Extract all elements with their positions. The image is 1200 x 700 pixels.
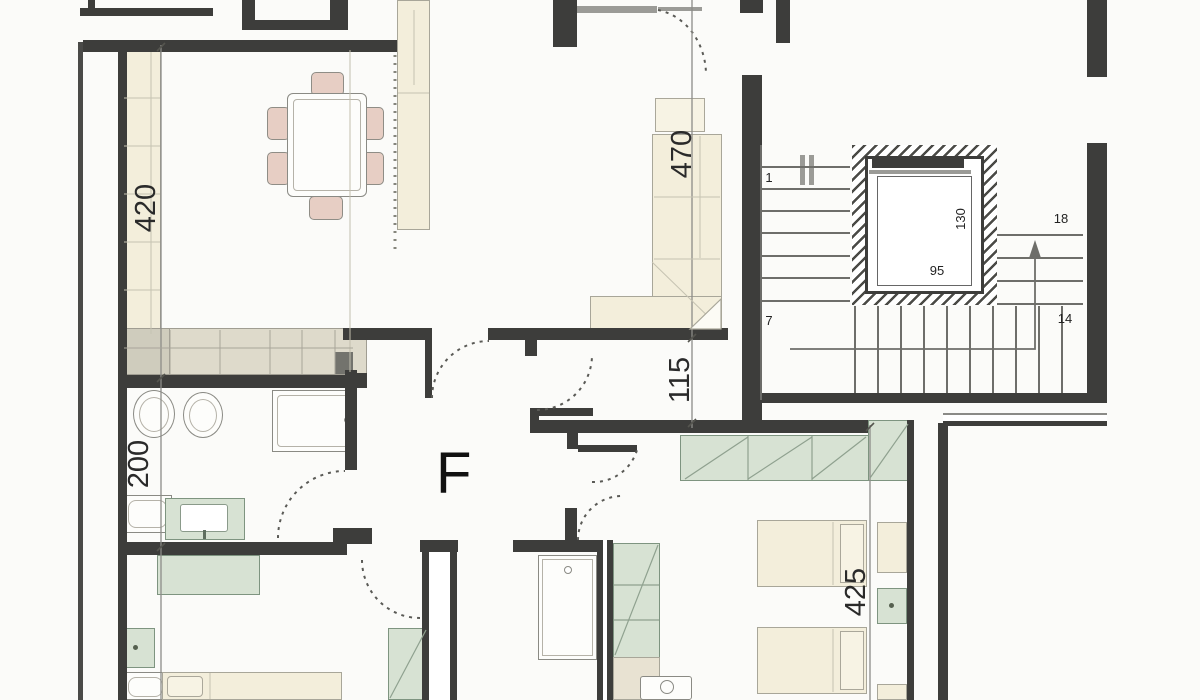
dim-corridor-width: 115 (667, 340, 693, 420)
stair-number-14: 14 (1054, 311, 1076, 325)
door-swing-arc (578, 496, 622, 540)
door-swing-arc (432, 341, 489, 398)
elevator-depth-label: 130 (953, 201, 967, 237)
stair-direction-arrow (1029, 240, 1041, 258)
dim-bathroom-depth: 200 (126, 424, 152, 504)
door-swing-arc (658, 10, 706, 74)
dim-bedroom-depth: 425 (843, 552, 869, 632)
stair-number-7: 7 (762, 313, 776, 327)
floor-plan: F 420 200 470 115 425 1 7 18 14 95 130 (0, 0, 1200, 700)
plan-linework (0, 0, 1200, 700)
stair-number-first: 1 (762, 170, 776, 184)
door-swing-arc (537, 355, 592, 410)
door-swing-arc (362, 560, 420, 618)
dimension-tick (157, 43, 874, 551)
door-swing-arc (592, 450, 637, 482)
dimension-line (161, 0, 870, 700)
unit-label: F (436, 440, 490, 504)
kitchen-module-line (124, 330, 353, 374)
elevator-width-label: 95 (924, 263, 950, 277)
dim-living-depth: 470 (669, 114, 695, 194)
dim-living-width: 420 (133, 168, 159, 248)
furniture-detail-line (124, 10, 833, 699)
stair-number-18: 18 (1050, 211, 1072, 225)
door-swing-arc (278, 471, 345, 538)
